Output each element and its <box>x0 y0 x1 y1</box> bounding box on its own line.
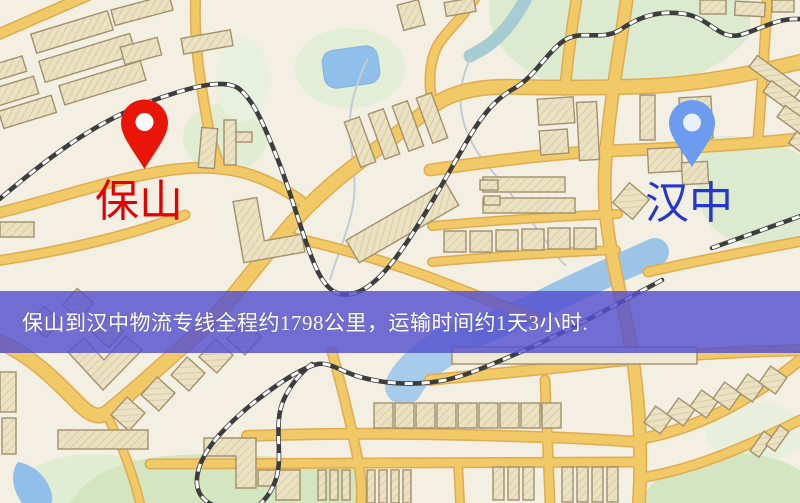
map-image: 保山 汉中 <box>0 0 800 503</box>
route-info-banner: 保山到汉中物流专线全程约1798公里，运输时间约1天3小时. <box>0 291 800 353</box>
destination-pin-hole <box>683 114 701 132</box>
origin-city-label: 保山 <box>95 177 183 226</box>
origin-pin-hole <box>136 113 154 131</box>
map-canvas: 保山 汉中 保山到汉中物流专线全程约1798公里，运输时间约1天3小时. <box>0 0 800 503</box>
destination-city-label: 汉中 <box>645 179 733 228</box>
route-info-text: 保山到汉中物流专线全程约1798公里，运输时间约1天3小时. <box>0 307 588 337</box>
